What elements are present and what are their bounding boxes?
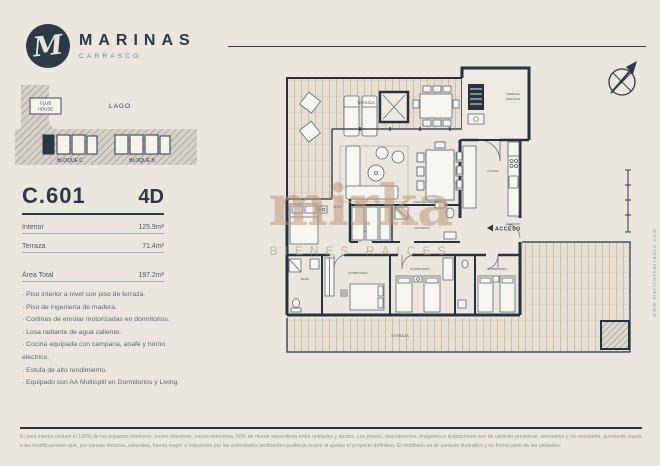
brand-name: MARINAS — [79, 32, 196, 50]
site-map: CLUB HOUSE LAGO BLOQUE C BLOQUE B — [15, 85, 200, 175]
feature-item: Cocina equipada con campana, anafe y hor… — [22, 339, 190, 364]
living-room: LIVING COMEDOR — [340, 142, 463, 208]
terrace-planter — [601, 321, 629, 349]
room-label-vestidor: VESTIDOR — [414, 226, 430, 230]
louver-unit — [468, 84, 484, 110]
room-label-living: LIVING COMEDOR — [413, 200, 440, 204]
floorplan-sheet: M MARINAS CARRASCO CLUB HOUSE LAGO — [0, 0, 660, 466]
floor-plan: TERRAZA TERRAZA SERVICIO — [275, 52, 647, 409]
room-label-dormitorio-1: DORMITORIO — [348, 271, 368, 275]
feature-item: Losa radiante de agua caliente. — [22, 327, 190, 340]
feature-item: Estufa de alto rendimiento. — [22, 365, 190, 378]
area-row-interior: Interior 125.9m² — [22, 224, 164, 234]
room-label-servicio-1: TERRAZA — [506, 92, 520, 96]
scale-bar — [625, 170, 631, 232]
area-total-label: Área Total — [22, 272, 53, 279]
area-label: Terraza — [22, 243, 45, 250]
feature-list: Piso interior a nivel con piso de terraz… — [22, 289, 190, 390]
clubhouse-label-2: HOUSE — [38, 107, 53, 112]
block-b-units — [115, 135, 170, 154]
compass-icon — [609, 61, 637, 95]
room-label-terraza-top: TERRAZA — [357, 101, 375, 105]
room-label-suite: SUITE — [333, 205, 342, 209]
feature-item: Piso de ingeniería de madera. — [22, 302, 190, 315]
entrance-arrow-icon — [487, 225, 493, 232]
block-b-label: BLOQUE B — [129, 158, 155, 164]
feature-item: Piso interior a nivel con piso de terraz… — [22, 289, 190, 302]
room-label-cocina: COCINA — [487, 169, 499, 173]
room-label-servicio-2: SERVICIO — [506, 97, 521, 101]
room-label-dormitorio-2: DORMITORIO — [410, 267, 430, 271]
legal-disclaimer: El área interior incluye el 100% de los … — [20, 433, 642, 451]
room-label-dormitorio-3: DORMITORIO — [487, 267, 507, 271]
room-label-terraza-bottom: TERRAZA — [391, 334, 409, 338]
header-divider — [228, 46, 646, 47]
block-c-units — [43, 135, 97, 154]
area-row-total: Área Total 197.2m² — [22, 272, 164, 282]
brand-subtitle: CARRASCO — [79, 53, 196, 60]
bedroom-3: DORMITORIO — [478, 267, 515, 312]
lake-label: LAGO — [109, 103, 131, 110]
area-value: 125.9m² — [138, 224, 164, 231]
bedroom-1: DORMITORIO — [325, 258, 384, 310]
area-row-terraza: Terraza 71.4m² — [22, 243, 164, 253]
unit-type: 4D — [138, 186, 164, 209]
block-c-label: BLOQUE C — [57, 158, 83, 164]
bathroom: BAÑO — [289, 259, 319, 312]
website-url: www.marinascarrasco.com — [652, 228, 658, 317]
unit-code: C.601 — [22, 183, 86, 209]
area-label: Interior — [22, 224, 44, 231]
bathroom-2 — [458, 260, 468, 308]
room-label-bano: BAÑO — [301, 276, 310, 281]
entrance-marker: ACCESO — [487, 225, 521, 233]
brand-logo: M MARINAS CARRASCO — [26, 24, 196, 68]
kitchen: COCINA — [457, 142, 519, 216]
footer-divider — [20, 427, 642, 429]
bedroom-2: DORMITORIO — [396, 258, 453, 312]
room-label-acceso: ACCESO — [495, 227, 521, 233]
area-total-value: 197.2m² — [138, 272, 164, 279]
vestidor-block: VESTIDOR — [352, 207, 456, 240]
brand-monogram-icon: M — [26, 24, 70, 68]
clubhouse-label-1: CLUB — [40, 101, 52, 106]
unit-summary: C.601 4D Interior 125.9m² Terraza 71.4m²… — [22, 183, 164, 282]
feature-item: Equipado con AA Multisplit en Dormitorio… — [22, 377, 190, 390]
area-value: 71.4m² — [142, 243, 164, 250]
monogram-letter: M — [32, 31, 65, 61]
suite-room: SUITE — [290, 204, 343, 244]
feature-item: Cortinas de enrolar motorizadas en dormi… — [22, 314, 190, 327]
